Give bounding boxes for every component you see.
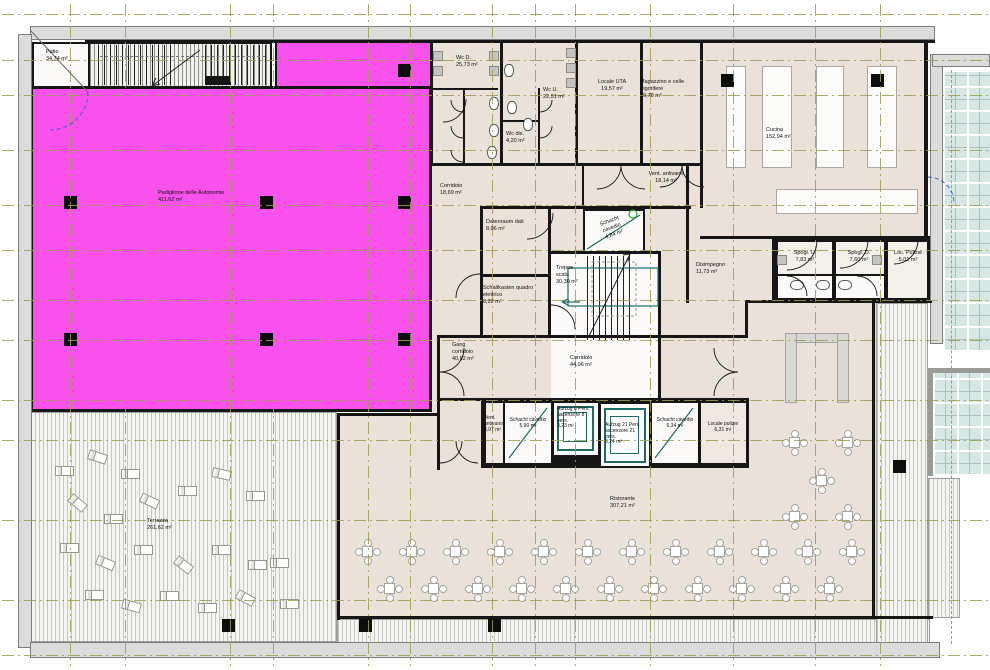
room-label-locale-uta: Locale UTA19,57 m²	[588, 79, 636, 93]
wall	[337, 616, 933, 619]
table-top	[450, 546, 461, 557]
chair	[804, 557, 812, 565]
dining-table	[817, 576, 843, 602]
grid-line-vertical	[733, 4, 734, 666]
grid-line-horizontal	[2, 60, 988, 61]
chair	[844, 522, 852, 530]
toilet-fixture	[504, 64, 514, 77]
dining-table	[795, 539, 821, 565]
room-label-locale-pulizie-2: Locale pulizie6,31 m²	[702, 422, 744, 434]
dining-table	[835, 504, 861, 530]
table-top	[842, 437, 853, 448]
chair	[527, 585, 535, 593]
interior-floor	[430, 40, 926, 618]
chair	[597, 585, 605, 593]
chair	[584, 539, 592, 547]
dining-table	[773, 576, 799, 602]
chair	[827, 477, 835, 485]
dining-table	[619, 539, 645, 565]
grid-line-vertical	[70, 4, 71, 666]
chair	[751, 548, 759, 556]
lounge-chair	[178, 486, 197, 496]
dining-table	[377, 576, 403, 602]
wall	[538, 88, 540, 163]
chair	[606, 576, 614, 584]
chair	[637, 548, 645, 556]
grid-line-vertical	[880, 4, 881, 666]
room-label-vent-antivano-2: Vent. antivano3,97 m²	[484, 416, 504, 433]
chair	[760, 557, 768, 565]
stair-landing	[205, 76, 231, 85]
lounge-chair	[248, 560, 267, 570]
table-top	[670, 546, 681, 557]
grid-line-vertical	[815, 4, 816, 666]
chair	[848, 557, 856, 565]
room-label-spogl-u: Spogl. U.7,83 m²	[786, 250, 824, 264]
wall	[548, 251, 660, 254]
dining-table	[751, 539, 777, 565]
wall	[700, 236, 775, 239]
room-padiglione-highlight	[30, 86, 432, 412]
chair	[575, 548, 583, 556]
lounge-chair	[121, 469, 140, 479]
dining-table	[575, 539, 601, 565]
grid-line-vertical	[650, 4, 651, 666]
grid-line-vertical	[575, 4, 576, 666]
lounge-chair	[55, 466, 74, 476]
toilet-fixture	[507, 101, 517, 114]
table-top	[560, 583, 571, 594]
grid-line-vertical	[492, 4, 493, 666]
table-top	[516, 583, 527, 594]
structural-column	[488, 619, 501, 632]
chair	[377, 585, 385, 593]
chair	[791, 504, 799, 512]
chair	[496, 539, 504, 547]
dining-table	[663, 539, 689, 565]
chair	[487, 548, 495, 556]
dining-table	[782, 504, 808, 530]
chair	[540, 557, 548, 565]
table-top	[758, 546, 769, 557]
wall	[85, 40, 935, 43]
chair	[716, 539, 724, 547]
room-label-wc-dis: Wc dis.4,20 m²	[506, 131, 525, 145]
dining-table	[782, 430, 808, 456]
chair	[844, 430, 852, 438]
chair	[769, 548, 777, 556]
chair	[857, 548, 865, 556]
wall	[432, 88, 498, 90]
grid-line-vertical	[125, 4, 126, 666]
lounge-chair	[85, 590, 104, 600]
toilet-fixture	[489, 97, 499, 110]
south-deck	[337, 619, 930, 644]
chair	[791, 448, 799, 456]
table-top	[494, 546, 505, 557]
dining-table	[685, 576, 711, 602]
table-top	[582, 546, 593, 557]
dining-table	[835, 430, 861, 456]
dining-table	[509, 576, 535, 602]
table-top	[472, 583, 483, 594]
room-label-spogl-d: Spogl. D.7,60 m²	[840, 250, 878, 264]
chair	[844, 504, 852, 512]
room-label-schacht-2: Schacht cavedio5,90 m²	[508, 418, 548, 430]
chair	[628, 557, 636, 565]
wall	[480, 206, 691, 209]
structural-column	[260, 196, 273, 209]
chair	[826, 576, 834, 584]
chair	[782, 576, 790, 584]
grid-line-horizontal	[2, 600, 988, 601]
toilet-fixture	[523, 118, 533, 131]
room-label-magazzino: Magazzino e celle frigorifere19,78 m²	[640, 79, 698, 100]
table-top	[626, 546, 637, 557]
chair	[439, 585, 447, 593]
table-top	[384, 583, 395, 594]
grid-line-vertical	[368, 4, 369, 666]
room-label-aufzug-8: Aufzug 8 Pers. ascensore 8 pers.3,23 m²	[557, 407, 595, 430]
chair	[641, 585, 649, 593]
chair	[496, 557, 504, 565]
dining-table	[421, 576, 447, 602]
stair-flight	[98, 45, 176, 85]
dining-table	[487, 539, 513, 565]
dining-table	[839, 539, 865, 565]
chair	[650, 576, 658, 584]
grid-line-horizontal	[2, 150, 988, 151]
room-label-disimpegno: Disimpegno11,73 m²	[696, 262, 725, 276]
wall	[872, 302, 875, 619]
wall	[658, 251, 661, 398]
chair	[593, 548, 601, 556]
dining-table	[809, 468, 835, 494]
wall	[924, 40, 928, 238]
chair	[844, 448, 852, 456]
kitchen-island	[762, 66, 792, 168]
chair	[395, 585, 403, 593]
table-top	[824, 583, 835, 594]
grid-line-horizontal	[2, 340, 988, 341]
chair	[716, 557, 724, 565]
outer-wall-left	[18, 34, 32, 648]
chair	[465, 585, 473, 593]
table-top	[789, 437, 800, 448]
grid-line-vertical	[230, 4, 231, 666]
room-label-wc-d: Wc D.25,73 m²	[456, 55, 478, 69]
structural-column	[222, 619, 235, 632]
table-top	[692, 583, 703, 594]
lounge-chair	[104, 514, 123, 524]
chair	[659, 585, 667, 593]
grid-line-horizontal	[2, 14, 988, 15]
room-label-terrazza: Terrazza261,62 m²	[147, 518, 172, 532]
chair	[848, 539, 856, 547]
toilet-fixture	[489, 124, 499, 137]
chair	[540, 539, 548, 547]
dining-table	[465, 576, 491, 602]
chair	[685, 585, 693, 593]
chair	[483, 585, 491, 593]
east-deck	[928, 478, 960, 618]
chair	[421, 585, 429, 593]
room-label-corridoio-2: Corridoio44,06 m²	[570, 355, 592, 369]
grid-line-horizontal	[2, 205, 988, 206]
chair	[672, 557, 680, 565]
chair	[694, 576, 702, 584]
room-label-vent-antivano-1: Vent. antivano18,14 m²	[644, 171, 688, 185]
room-label-gang: Gang corridoio40,62 m²	[452, 342, 488, 363]
table-top	[816, 475, 827, 486]
chair	[795, 548, 803, 556]
chair	[373, 548, 381, 556]
chair	[553, 585, 561, 593]
chair	[628, 539, 636, 547]
chair	[452, 539, 460, 547]
chair	[474, 576, 482, 584]
dining-table	[707, 539, 733, 565]
dining-table	[399, 539, 425, 565]
room-label-treppe: Treppe scala30,30 m²	[556, 265, 586, 286]
grid-line-vertical	[273, 4, 274, 666]
table-top	[714, 546, 725, 557]
room-label-aufzug-21: Aufzug 21 Pers. ascensore 21 pers.6,24 m…	[605, 423, 645, 446]
glass-roof-box	[928, 368, 990, 476]
chair	[562, 576, 570, 584]
floor-plan-canvas: Patio34,74 m² Padiglione delle Autonomie…	[0, 0, 990, 670]
chair	[417, 548, 425, 556]
toilet-fixture	[790, 280, 804, 290]
lounge-chair	[246, 491, 265, 501]
table-top	[604, 583, 615, 594]
chair	[443, 548, 451, 556]
room-schacht-cavedio-2	[505, 403, 551, 463]
chair	[817, 585, 825, 593]
room-label-schaltkasten: Schaltkasten quadro elettrico8,22 m²	[483, 285, 535, 306]
wall	[337, 413, 440, 416]
wall	[337, 413, 340, 620]
toilet-fixture	[816, 280, 830, 290]
chair	[818, 486, 826, 494]
lounge-chair	[198, 603, 217, 613]
chair	[839, 548, 847, 556]
chair	[672, 539, 680, 547]
chair	[773, 585, 781, 593]
structural-column	[893, 460, 906, 473]
wall	[548, 206, 551, 338]
room-label-padiglione: Padiglione delle Autonomie411,62 m²	[158, 190, 224, 204]
chair	[804, 539, 812, 547]
chair	[791, 522, 799, 530]
locker-icon	[433, 66, 443, 76]
outer-wall-top	[30, 26, 935, 40]
chair	[386, 576, 394, 584]
chair	[452, 557, 460, 565]
room-label-patio: Patio34,74 m²	[46, 49, 68, 63]
chair	[835, 585, 843, 593]
dining-table	[641, 576, 667, 602]
bar-counter	[785, 333, 797, 403]
chair	[725, 548, 733, 556]
wall	[582, 163, 584, 209]
dining-table	[443, 539, 469, 565]
chair	[615, 585, 623, 593]
chair	[505, 548, 513, 556]
structural-column	[871, 74, 884, 87]
wall	[437, 335, 440, 470]
wall	[500, 40, 503, 166]
room-label-corridoio-1: Corridoio18,69 m²	[440, 183, 462, 197]
room-label-schacht-3: Schacht cavedio6,34 m²	[654, 418, 696, 430]
canopy-dash-line	[951, 70, 952, 644]
room-label-wc-u: Wc U.22,51 m²	[543, 87, 565, 101]
table-top	[846, 546, 857, 557]
wall	[430, 163, 703, 166]
chair	[818, 468, 826, 476]
room-label-datenraum: Datenraum dati8,06 m²	[486, 219, 530, 233]
table-top	[428, 583, 439, 594]
structural-column	[359, 619, 372, 632]
wall	[480, 206, 483, 338]
kitchen-counter	[776, 189, 918, 214]
room-schacht-cavedio-3	[652, 403, 698, 463]
table-top	[802, 546, 813, 557]
chair	[461, 548, 469, 556]
stair-treads	[587, 256, 631, 340]
wall	[480, 274, 550, 277]
grid-line-horizontal	[2, 440, 988, 441]
chair	[747, 585, 755, 593]
room-label-loc-pulizie: Loc. Pulizie5,01 m²	[889, 250, 927, 264]
bar-counter	[837, 333, 849, 403]
chair	[681, 548, 689, 556]
locker-icon	[489, 66, 499, 76]
kitchen-island	[816, 66, 844, 168]
table-top	[780, 583, 791, 594]
east-deck	[876, 303, 928, 644]
lounge-chair	[212, 545, 231, 555]
chair	[791, 430, 799, 438]
chair	[738, 576, 746, 584]
chair	[584, 557, 592, 565]
chair	[518, 576, 526, 584]
wall	[463, 88, 465, 163]
chair	[760, 539, 768, 547]
table-top	[736, 583, 747, 594]
chair	[430, 576, 438, 584]
grid-line-horizontal	[2, 95, 988, 96]
chair	[707, 548, 715, 556]
chair	[399, 548, 407, 556]
chair	[549, 548, 557, 556]
chair	[663, 548, 671, 556]
chair	[509, 585, 517, 593]
wall	[640, 40, 643, 166]
table-top	[406, 546, 417, 557]
lounge-chair	[134, 545, 153, 555]
room-label-ristorante: Ristorante307,21 m²	[610, 496, 635, 510]
chair	[703, 585, 711, 593]
grid-line-horizontal	[2, 655, 988, 656]
grid-line-vertical	[410, 4, 411, 666]
wall	[745, 300, 748, 338]
table-top	[538, 546, 549, 557]
grid-line-vertical	[535, 4, 536, 666]
chair	[355, 548, 363, 556]
grid-line-horizontal	[2, 400, 988, 401]
room-label-cucina: Cucina152,94 m²	[766, 127, 791, 141]
chair	[791, 585, 799, 593]
chair	[619, 548, 627, 556]
toilet-fixture	[838, 280, 852, 290]
dining-table	[597, 576, 623, 602]
wall	[700, 40, 703, 208]
